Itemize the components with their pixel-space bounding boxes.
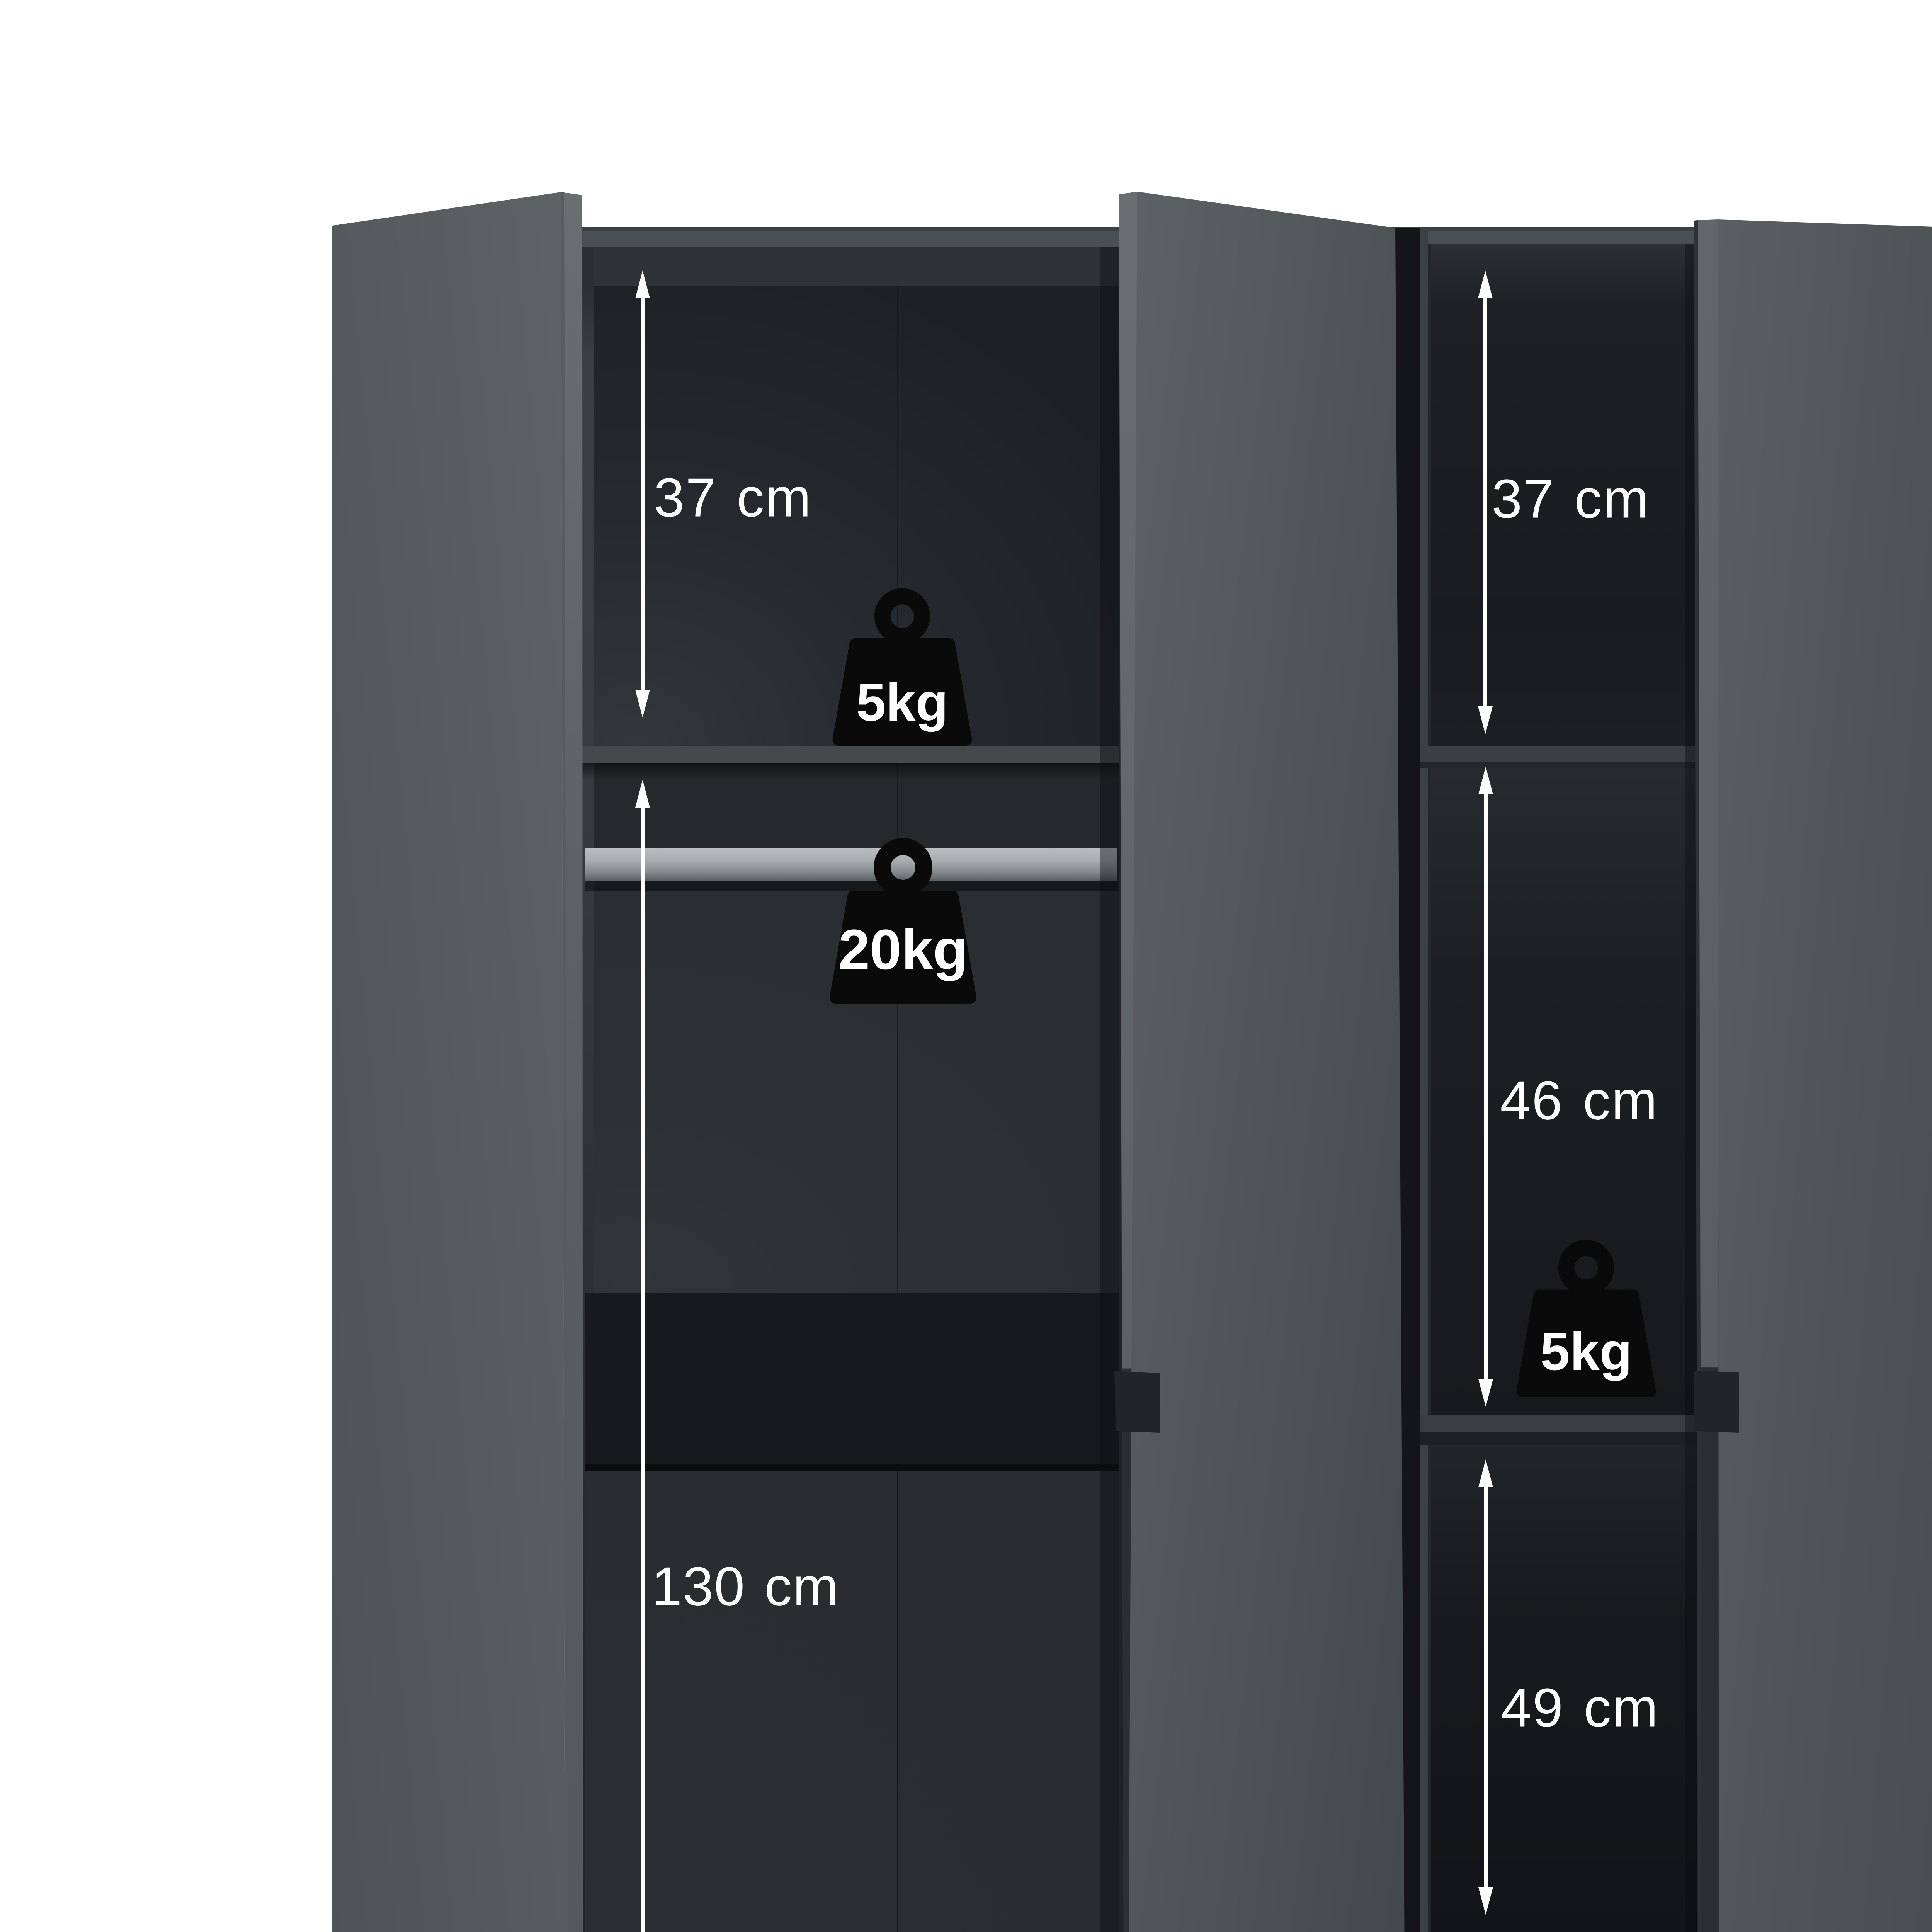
svg-text:46 cm: 46 cm xyxy=(1500,1070,1658,1131)
svg-text:20kg: 20kg xyxy=(838,918,968,981)
svg-text:130 cm: 130 cm xyxy=(651,1556,839,1617)
svg-text:49 cm: 49 cm xyxy=(1501,1677,1659,1739)
svg-text:37 cm: 37 cm xyxy=(1492,468,1650,530)
svg-text:5kg: 5kg xyxy=(856,673,948,732)
svg-text:37 cm: 37 cm xyxy=(654,467,812,529)
svg-text:5kg: 5kg xyxy=(1540,1322,1632,1381)
